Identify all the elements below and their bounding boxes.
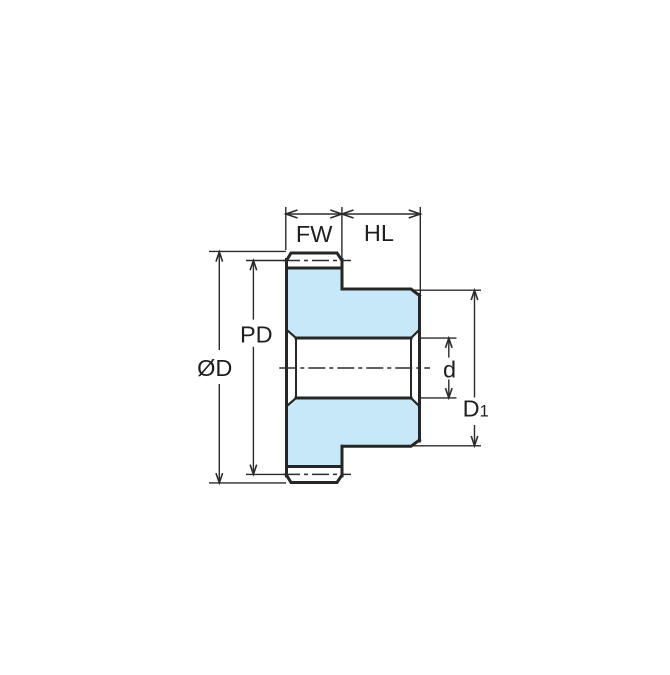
svg-text:D: D bbox=[463, 395, 480, 421]
svg-text:1: 1 bbox=[480, 402, 489, 420]
svg-text:d: d bbox=[443, 357, 456, 383]
svg-text:FW: FW bbox=[296, 221, 333, 247]
svg-text:PD: PD bbox=[240, 322, 273, 348]
svg-text:HL: HL bbox=[364, 220, 394, 246]
svg-text:ØD: ØD bbox=[197, 355, 232, 381]
